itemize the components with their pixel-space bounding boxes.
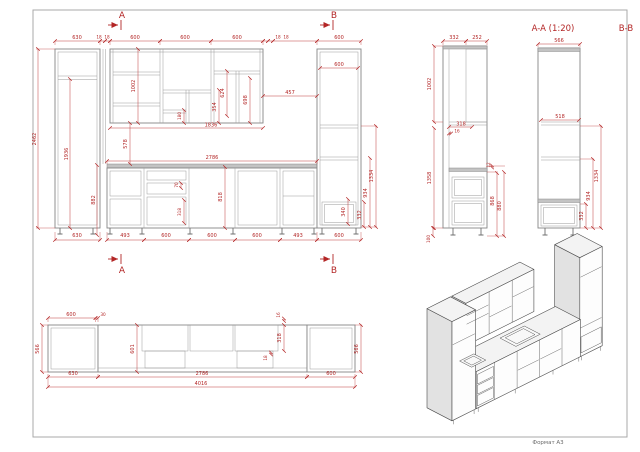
- dim-label: 18: [263, 355, 268, 361]
- dim-label: 100: [426, 235, 431, 243]
- section-title-bb: B-B: [619, 24, 634, 34]
- dim-label: 698: [243, 95, 249, 105]
- dim-label: 332: [357, 210, 363, 220]
- dim-label: 868: [490, 196, 496, 206]
- dim-label: 600: [334, 62, 344, 68]
- right-tall-cabinet: [317, 49, 361, 228]
- dim-label: 4016: [195, 381, 208, 387]
- dim-label: 566: [354, 344, 360, 354]
- dim-label: 600: [334, 35, 344, 41]
- dim-label: 18: [96, 35, 102, 40]
- dim-label: 354: [212, 102, 218, 112]
- plan-left-cabinet: [48, 325, 98, 372]
- dim-label: 600: [207, 233, 217, 239]
- dim-label: 934: [363, 188, 369, 198]
- dim-label: 882: [91, 195, 97, 205]
- dim-label: 630: [72, 233, 82, 239]
- dim-label: 518: [555, 114, 565, 120]
- dim-label: 318: [277, 333, 283, 343]
- dim-label: 880: [497, 201, 503, 211]
- section-title-aa: A-A (1:20): [532, 24, 575, 34]
- dim-label: 600: [161, 233, 171, 239]
- dim-label: 630: [68, 371, 78, 377]
- dim-label: 252: [472, 35, 482, 41]
- plan-right-cabinet: [307, 325, 355, 372]
- dim-label: 30: [100, 312, 106, 317]
- dim-label: 332: [449, 35, 459, 41]
- section-view-2: A-A (1:20) 566 518 1334 934 332: [532, 24, 602, 235]
- base-cabinets: [107, 168, 317, 228]
- dim-label: 1836: [205, 123, 218, 129]
- section-marker-a-bottom: A: [119, 266, 126, 276]
- dim-label: 18: [104, 35, 110, 40]
- front-elevation-view: 630 18 18 600 600 600 18 18 600 2462 193…: [32, 35, 377, 241]
- dim-label: 600: [334, 233, 344, 239]
- section-view-1: 332 252 1002 1358 318 16 12 868 880 100: [426, 35, 505, 243]
- dim-label: 457: [285, 90, 295, 96]
- dim-label: 1334: [594, 170, 600, 183]
- dim-label: 566: [35, 344, 41, 354]
- dim-label: 630: [72, 35, 82, 41]
- dim-label: 12: [486, 162, 491, 168]
- dim-label: 600: [66, 312, 76, 318]
- sheet-format-label: Формат А3: [532, 440, 564, 446]
- section-marker-b-top: B: [331, 11, 337, 21]
- section1-carcass: [443, 46, 487, 228]
- dim-label: 1936: [64, 148, 70, 161]
- dim-label: 1002: [427, 78, 433, 91]
- dim-label: 180: [177, 112, 182, 120]
- dim-label: 1334: [369, 170, 375, 183]
- dim-label: 600: [232, 35, 242, 41]
- dim-label: 70: [174, 182, 179, 188]
- dim-label: 601: [130, 344, 136, 354]
- dim-label: 2462: [32, 133, 38, 146]
- countertop: [107, 164, 317, 168]
- dim-label: 934: [586, 191, 592, 201]
- dim-label: 340: [341, 207, 347, 217]
- isometric-view: [427, 234, 602, 425]
- dim-label: 600: [326, 371, 336, 377]
- dim-label: 1358: [427, 172, 433, 185]
- dim-label: 16: [276, 312, 281, 318]
- dim-label: 493: [120, 233, 130, 239]
- dim-label: 318: [177, 208, 182, 216]
- dim-label: 1002: [131, 80, 137, 93]
- dim-label: 2786: [196, 371, 209, 377]
- dim-label: 332: [579, 211, 585, 221]
- dim-label: 566: [554, 38, 564, 44]
- dim-label: 18: [283, 35, 289, 40]
- dim-label: 318: [456, 122, 466, 128]
- dim-label: 818: [218, 192, 224, 202]
- dim-label: 2786: [206, 155, 219, 161]
- section-marker-b-bottom: B: [331, 266, 337, 276]
- dim-label: 600: [180, 35, 190, 41]
- cad-drawing-sheet: 630 18 18 600 600 600 18 18 600 2462 193…: [0, 0, 640, 452]
- dim-label: 578: [123, 139, 129, 149]
- dim-label: 624: [220, 88, 226, 98]
- dim-label: 600: [130, 35, 140, 41]
- dim-label: 18: [275, 35, 281, 40]
- dim-label: 600: [252, 233, 262, 239]
- plan-view: 600 30 566 601 16 318 18 566 630 2786 60…: [35, 312, 362, 388]
- dim-label: 16: [454, 129, 460, 134]
- dim-label: 493: [293, 233, 303, 239]
- section-marker-a-top: A: [119, 11, 126, 21]
